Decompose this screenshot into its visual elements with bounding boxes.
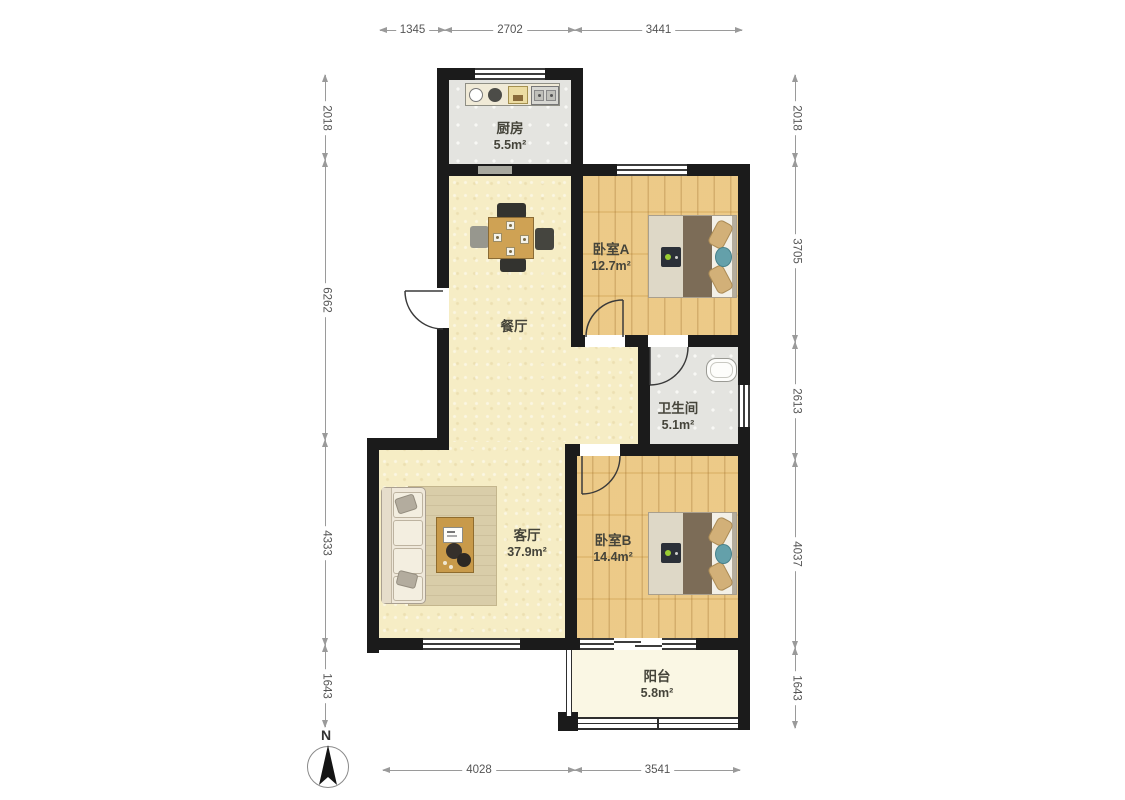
dim-top-1: 1345 bbox=[380, 30, 445, 31]
entry-door-arc bbox=[405, 291, 443, 329]
room-name: 卧室A bbox=[576, 242, 646, 259]
bathroom-door-arc bbox=[650, 347, 688, 385]
dim-bottom-2: 3541 bbox=[575, 770, 740, 771]
bedroom-a-door-arc bbox=[586, 300, 623, 337]
dim-label: 3541 bbox=[641, 764, 675, 777]
dim-left-2: 6262 bbox=[325, 160, 326, 440]
room-name: 阳台 bbox=[622, 669, 692, 686]
dim-label: 1643 bbox=[320, 669, 333, 703]
dim-label: 1345 bbox=[396, 24, 430, 37]
dim-label: 4037 bbox=[790, 537, 803, 571]
dim-right-1: 2018 bbox=[795, 75, 796, 160]
dim-bottom-1: 4028 bbox=[383, 770, 575, 771]
room-area: 14.4m² bbox=[578, 550, 648, 566]
room-name: 卧室B bbox=[578, 533, 648, 550]
compass-arrow-icon bbox=[307, 743, 349, 789]
dim-left-3: 4333 bbox=[325, 440, 326, 645]
compass-north-label: N bbox=[321, 727, 331, 743]
room-label-bedroom-a: 卧室A 12.7m² bbox=[576, 242, 646, 275]
dim-left-1: 2018 bbox=[325, 75, 326, 160]
dim-top-3: 3441 bbox=[575, 30, 742, 31]
room-label-living: 客厅 37.9m² bbox=[492, 528, 562, 561]
dim-label: 1643 bbox=[790, 671, 803, 705]
dim-right-5: 1643 bbox=[795, 648, 796, 728]
room-name: 卫生间 bbox=[643, 401, 713, 418]
dim-right-3: 2613 bbox=[795, 342, 796, 460]
dim-top-2: 2702 bbox=[445, 30, 575, 31]
dim-right-2: 3705 bbox=[795, 160, 796, 342]
room-area: 5.8m² bbox=[622, 686, 692, 702]
room-area: 37.9m² bbox=[492, 545, 562, 561]
dim-label: 4028 bbox=[462, 764, 496, 777]
dim-right-4: 4037 bbox=[795, 460, 796, 648]
room-name: 厨房 bbox=[449, 121, 571, 138]
room-label-balcony: 阳台 5.8m² bbox=[622, 669, 692, 702]
dim-label: 6262 bbox=[320, 283, 333, 317]
floor-plan: 厨房 5.5m² 卧室A 12.7m² 餐厅 卫生间 5.1m² 客厅 37.9… bbox=[0, 0, 1125, 800]
room-label-dining: 餐厅 bbox=[479, 319, 549, 336]
door-swings bbox=[0, 0, 1125, 800]
bedroom-b-door-arc bbox=[582, 456, 620, 494]
dim-label: 3441 bbox=[642, 24, 676, 37]
room-area: 12.7m² bbox=[576, 259, 646, 275]
room-label-kitchen: 厨房 5.5m² bbox=[449, 121, 571, 154]
dim-label: 2018 bbox=[320, 101, 333, 135]
room-label-bathroom: 卫生间 5.1m² bbox=[643, 401, 713, 434]
room-name: 客厅 bbox=[492, 528, 562, 545]
room-label-bedroom-b: 卧室B 14.4m² bbox=[578, 533, 648, 566]
room-area: 5.5m² bbox=[449, 138, 571, 154]
room-area: 5.1m² bbox=[643, 418, 713, 434]
dim-label: 2613 bbox=[790, 384, 803, 418]
dim-label: 4333 bbox=[320, 526, 333, 560]
dim-label: 2018 bbox=[790, 101, 803, 135]
dim-label: 2702 bbox=[493, 24, 527, 37]
dim-label: 3705 bbox=[790, 234, 803, 268]
dim-left-4: 1643 bbox=[325, 645, 326, 727]
room-name: 餐厅 bbox=[479, 319, 549, 336]
